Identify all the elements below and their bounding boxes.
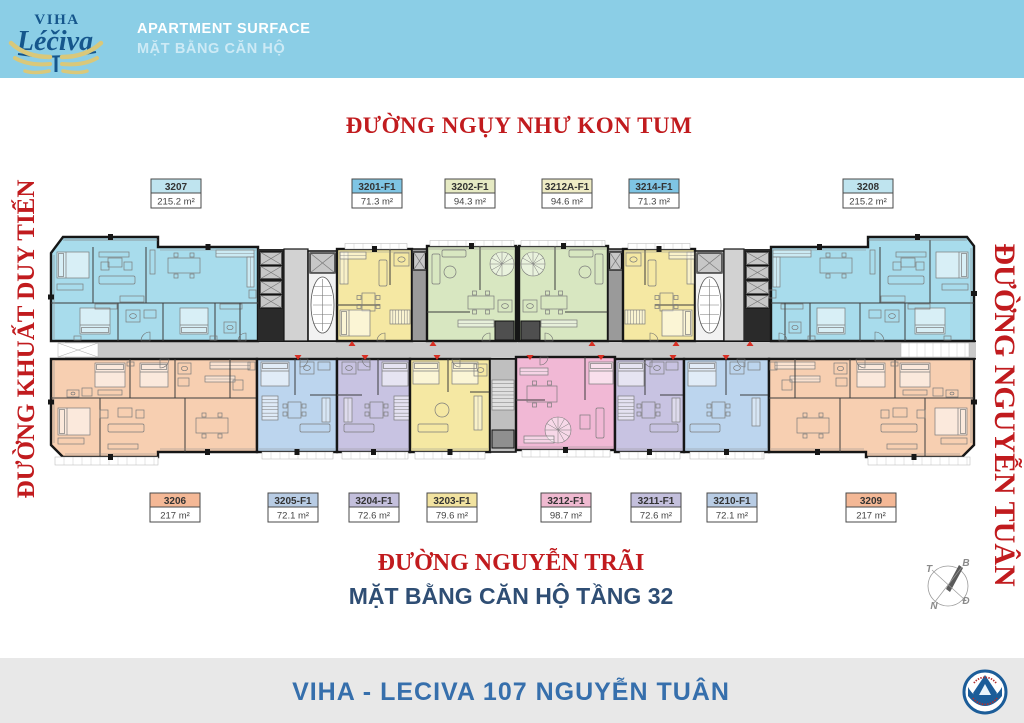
svg-text:B: B xyxy=(962,558,969,569)
svg-text:3202-F1: 3202-F1 xyxy=(451,182,489,193)
svg-text:72.6 m²: 72.6 m² xyxy=(640,511,672,522)
svg-text:72.6 m²: 72.6 m² xyxy=(358,511,390,522)
svg-text:217 m²: 217 m² xyxy=(160,511,190,522)
svg-text:79.6 m²: 79.6 m² xyxy=(436,511,468,522)
svg-text:71.3 m²: 71.3 m² xyxy=(638,197,670,208)
svg-text:3207: 3207 xyxy=(165,182,188,193)
svg-text:VIHA - LECIVA 107 NGUYỄN TUÂN: VIHA - LECIVA 107 NGUYỄN TUÂN xyxy=(292,676,730,706)
svg-text:3212A-F1: 3212A-F1 xyxy=(545,182,590,193)
svg-text:217 m²: 217 m² xyxy=(856,511,886,522)
svg-text:3205-F1: 3205-F1 xyxy=(274,496,312,507)
svg-text:215.2 m²: 215.2 m² xyxy=(157,197,195,208)
svg-text:ĐƯỜNG NGUYỄN TRÃI: ĐƯỜNG NGUYỄN TRÃI xyxy=(378,548,645,576)
svg-text:3204-F1: 3204-F1 xyxy=(355,496,393,507)
svg-text:94.3 m²: 94.3 m² xyxy=(454,197,486,208)
svg-text:98.7 m²: 98.7 m² xyxy=(550,511,582,522)
svg-text:3211-F1: 3211-F1 xyxy=(638,496,675,507)
svg-text:ĐƯỜNG KHUẤT DUY TIẾN: ĐƯỜNG KHUẤT DUY TIẾN xyxy=(11,180,40,499)
svg-text:APARTMENT SURFACE: APARTMENT SURFACE xyxy=(137,21,310,37)
svg-text:3214-F1: 3214-F1 xyxy=(635,182,673,193)
svg-text:71.3 m²: 71.3 m² xyxy=(361,197,393,208)
svg-text:3208: 3208 xyxy=(857,182,880,193)
svg-text:N: N xyxy=(930,601,938,612)
svg-text:MẶT BẰNG CĂN HỘ TẦNG 32: MẶT BẰNG CĂN HỘ TẦNG 32 xyxy=(349,582,674,609)
svg-text:T: T xyxy=(926,564,933,575)
svg-text:3209: 3209 xyxy=(860,496,883,507)
svg-text:72.1 m²: 72.1 m² xyxy=(716,511,748,522)
svg-text:3212-F1: 3212-F1 xyxy=(547,496,585,507)
svg-text:94.6 m²: 94.6 m² xyxy=(551,197,583,208)
svg-text:3206: 3206 xyxy=(164,496,187,507)
svg-text:3201-F1: 3201-F1 xyxy=(358,182,396,193)
svg-text:MẶT BẰNG CĂN HỘ: MẶT BẰNG CĂN HỘ xyxy=(137,39,285,57)
svg-text:3203-F1: 3203-F1 xyxy=(433,496,471,507)
svg-text:72.1 m²: 72.1 m² xyxy=(277,511,309,522)
svg-text:215.2 m²: 215.2 m² xyxy=(849,197,887,208)
svg-text:Đ: Đ xyxy=(962,596,969,607)
svg-text:ĐƯỜNG NGỤY NHƯ KON TUM: ĐƯỜNG NGỤY NHƯ KON TUM xyxy=(346,112,693,138)
svg-text:3210-F1: 3210-F1 xyxy=(713,496,751,507)
svg-text:ĐƯỜNG NGUYỄN TUÂN: ĐƯỜNG NGUYỄN TUÂN xyxy=(988,243,1022,587)
